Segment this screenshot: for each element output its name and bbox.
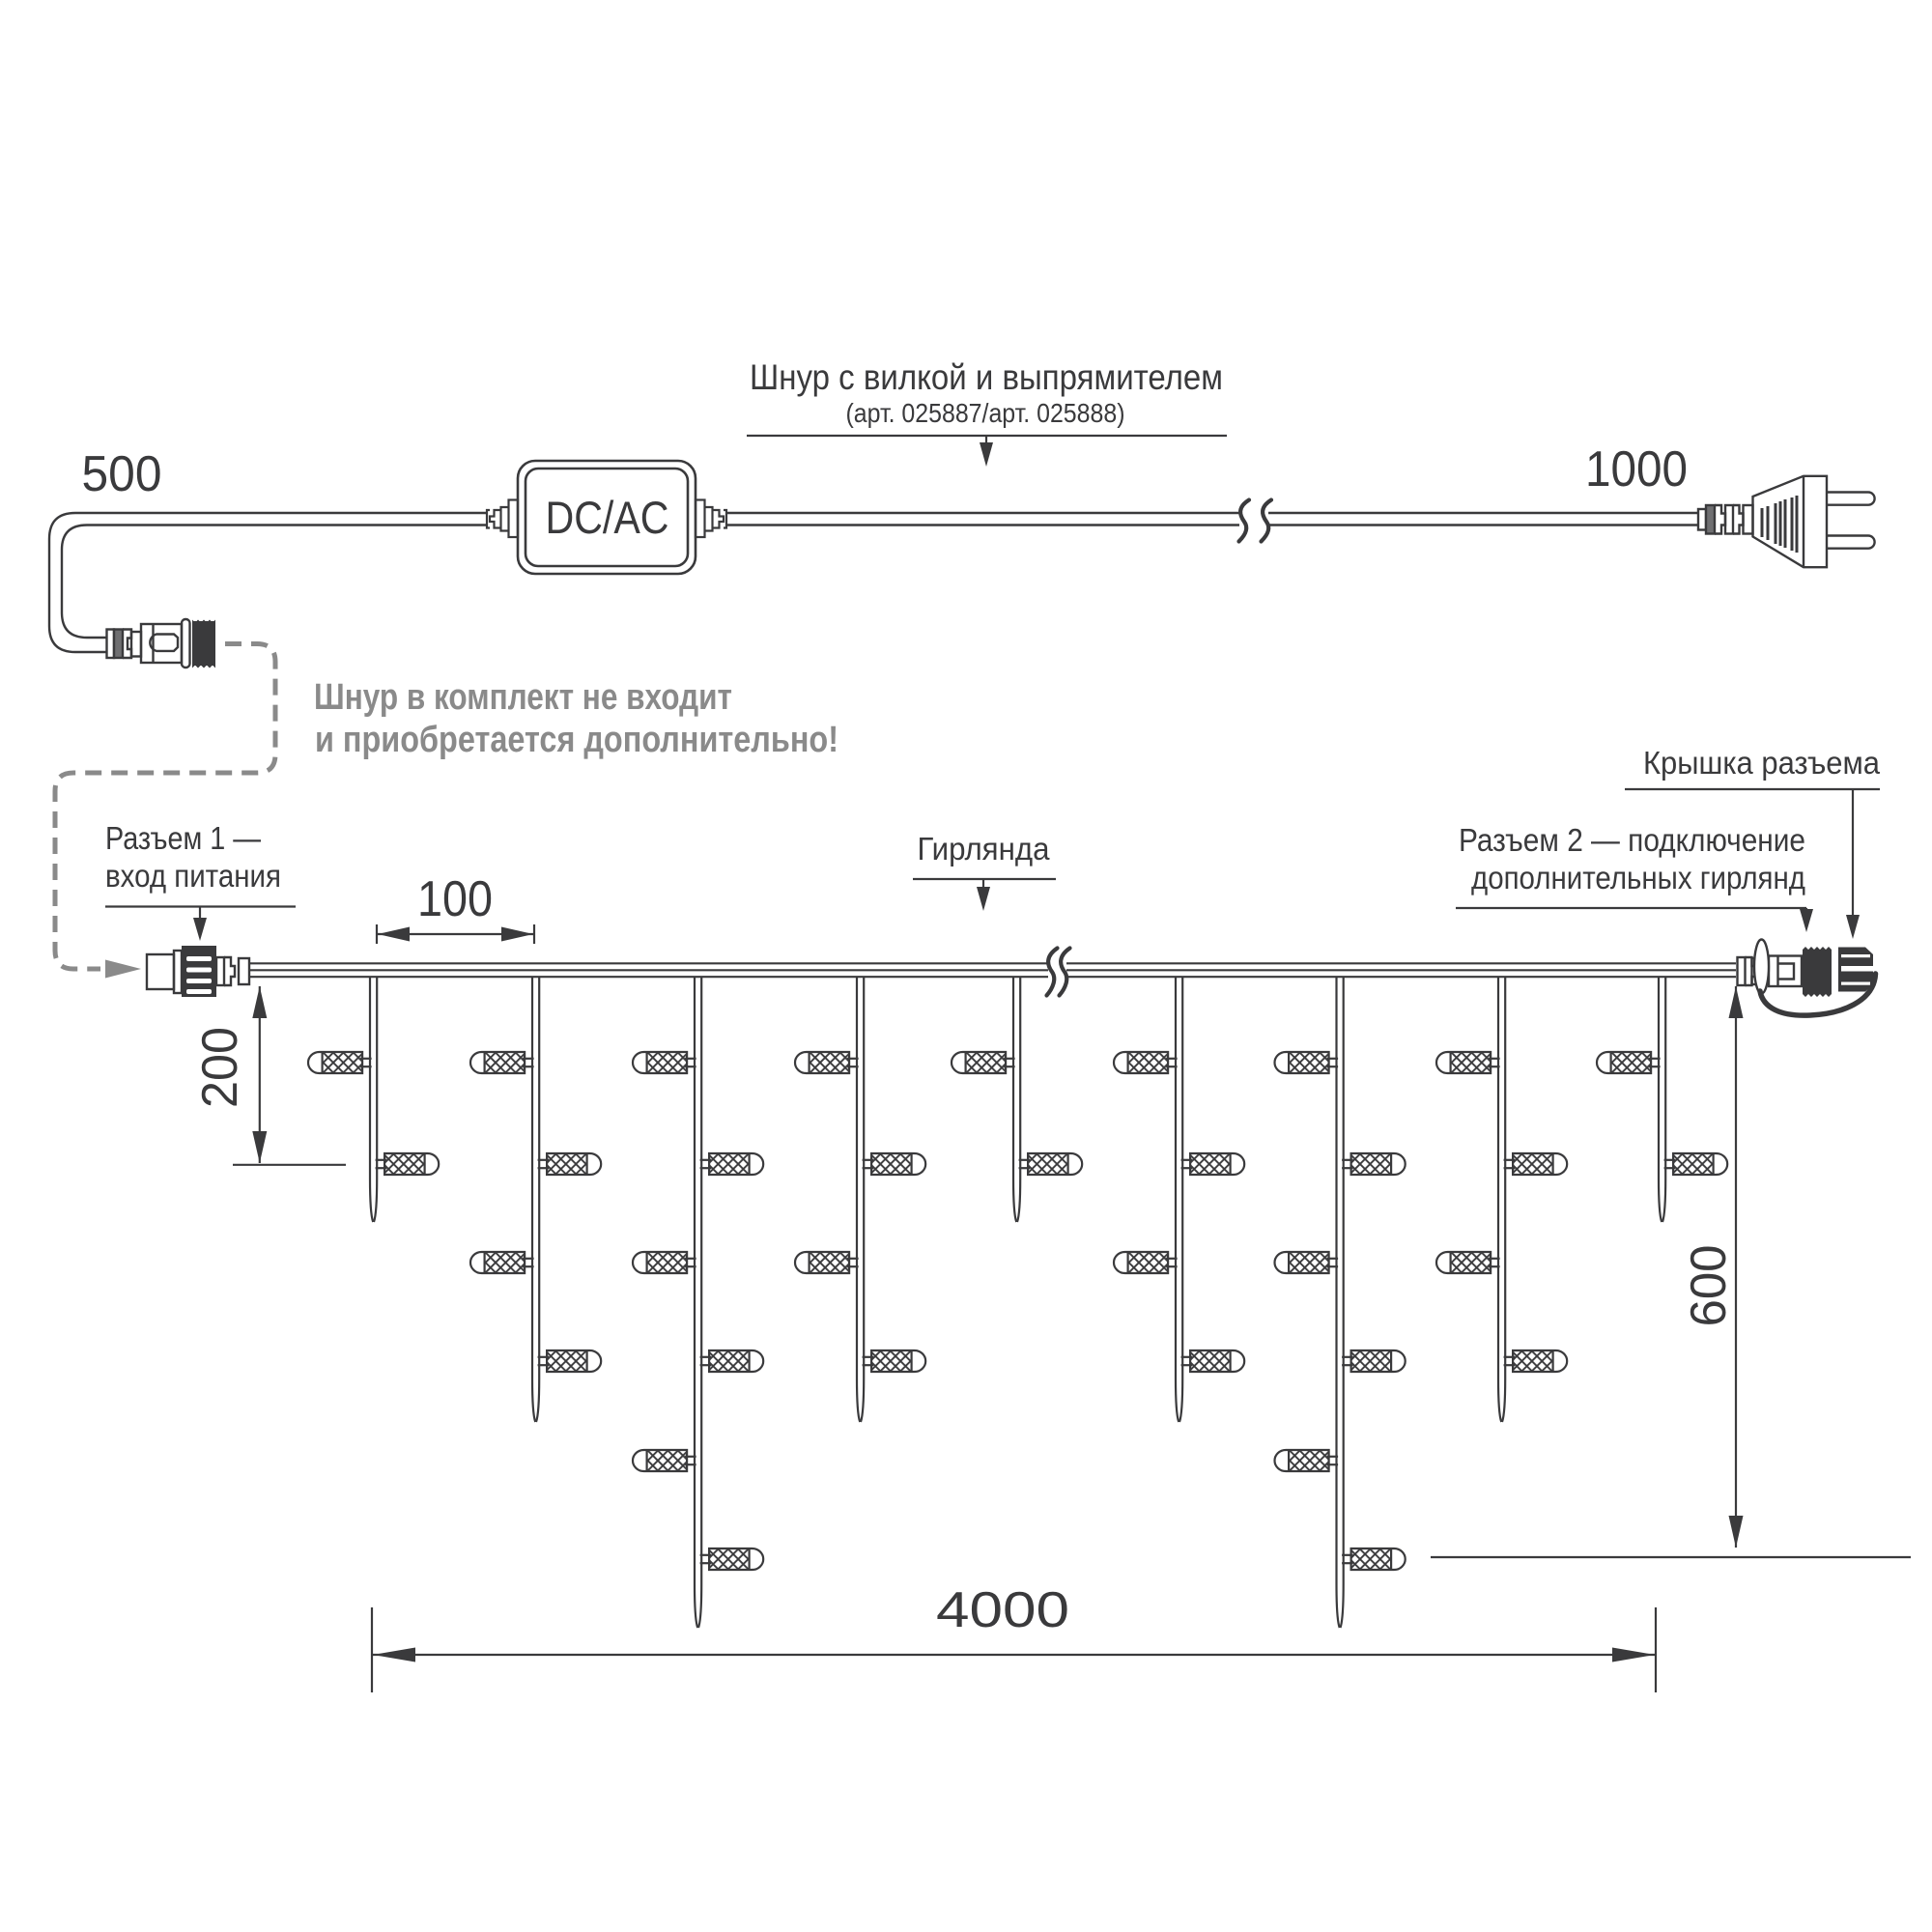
- svg-text:вход питания: вход питания: [105, 858, 281, 894]
- svg-text:Гирлянда: Гирлянда: [918, 831, 1051, 867]
- svg-text:DC/AC: DC/AC: [546, 492, 669, 543]
- svg-text:(арт. 025887/арт. 025888): (арт. 025887/арт. 025888): [846, 398, 1125, 428]
- svg-text:4000: 4000: [936, 1582, 1069, 1638]
- svg-text:и приобретается дополнительно!: и приобретается дополнительно!: [315, 720, 838, 760]
- svg-text:1000: 1000: [1585, 441, 1688, 497]
- svg-text:Разъем 1 —: Разъем 1 —: [105, 820, 261, 856]
- svg-text:Разъем 2 — подключение: Разъем 2 — подключение: [1459, 822, 1805, 858]
- svg-text:200: 200: [192, 1027, 248, 1108]
- svg-text:500: 500: [82, 446, 162, 502]
- svg-text:Крышка разъема: Крышка разъема: [1643, 745, 1881, 781]
- svg-text:100: 100: [417, 871, 493, 927]
- svg-text:Шнур с вилкой и выпрямителем: Шнур с вилкой и выпрямителем: [750, 357, 1223, 397]
- svg-text:Шнур в комплект не входит: Шнур в комплект не входит: [314, 677, 732, 718]
- svg-text:600: 600: [1681, 1245, 1737, 1327]
- svg-text:дополнительных гирлянд: дополнительных гирлянд: [1471, 860, 1805, 895]
